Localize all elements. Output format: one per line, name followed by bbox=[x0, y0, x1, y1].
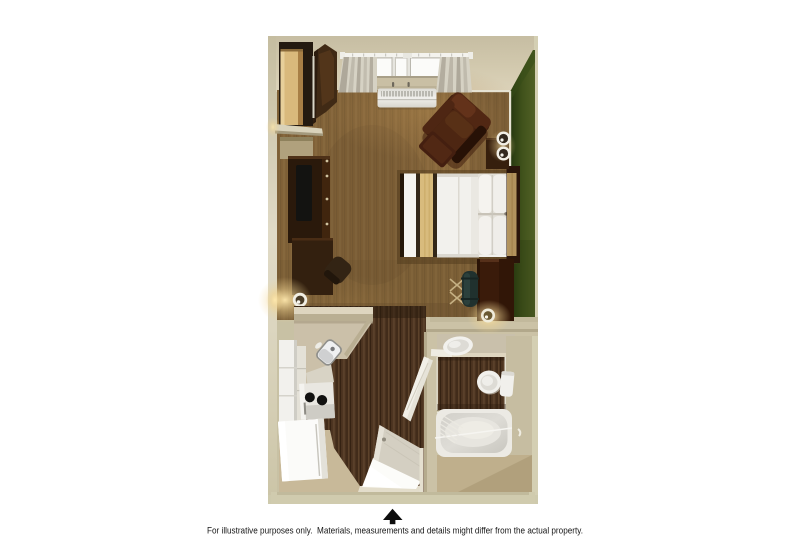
svg-text:For illustrative purposes only: For illustrative purposes only. Material… bbox=[207, 525, 583, 535]
